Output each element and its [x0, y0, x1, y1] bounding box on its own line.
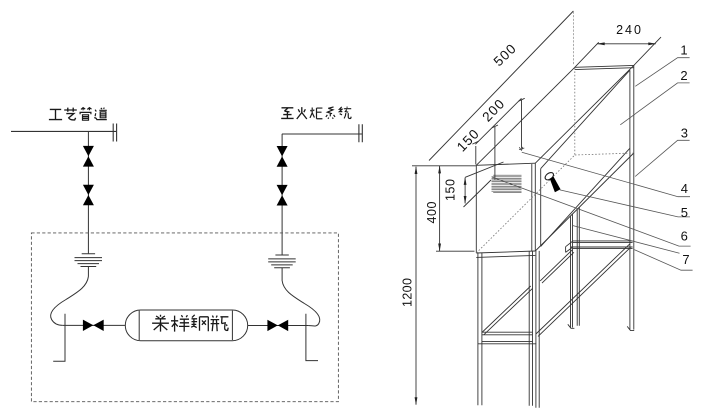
svg-text:150: 150	[444, 179, 458, 201]
svg-text:400: 400	[425, 201, 439, 223]
svg-text:4: 4	[681, 181, 688, 196]
svg-text:240: 240	[616, 23, 643, 37]
svg-text:3: 3	[681, 126, 688, 141]
svg-text:1200: 1200	[401, 278, 415, 307]
svg-text:1: 1	[680, 43, 687, 58]
svg-text:6: 6	[681, 229, 688, 244]
svg-text:2: 2	[680, 68, 687, 83]
svg-text:7: 7	[682, 252, 689, 267]
svg-text:5: 5	[681, 205, 688, 220]
